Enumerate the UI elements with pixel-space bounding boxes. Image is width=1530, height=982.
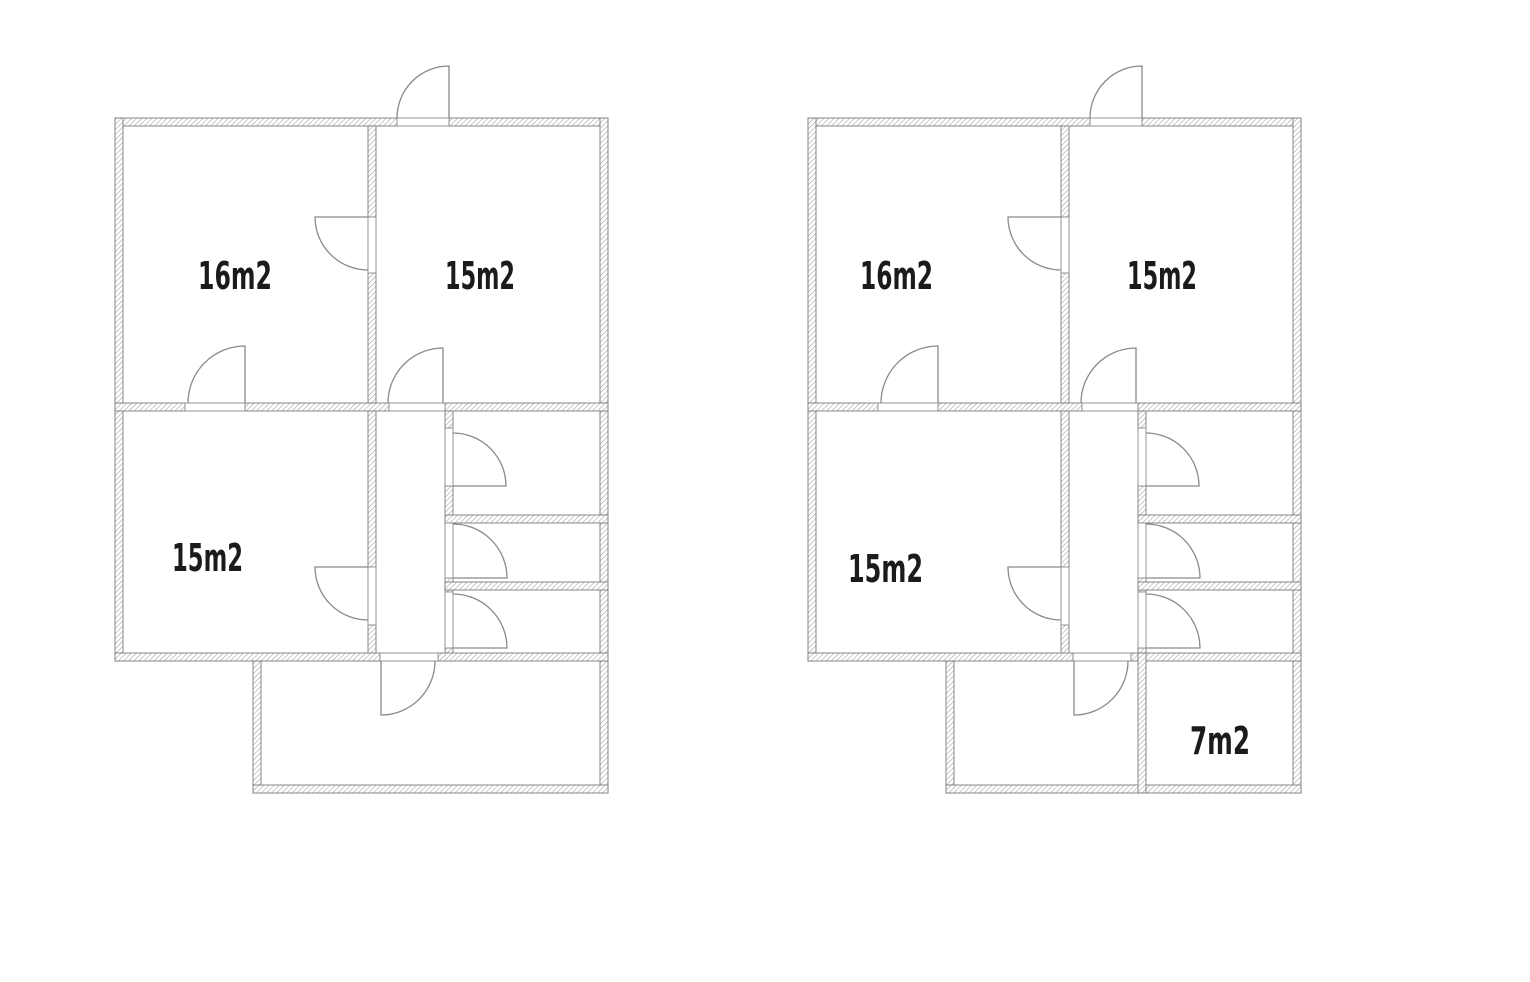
floor-plan-left: 16m215m215m2 [115,66,608,793]
door-opening [445,592,453,648]
door-opening [185,403,245,411]
door-opening [1138,523,1146,578]
wall-segment [115,118,123,661]
wall-segment [1138,411,1146,428]
wall-segment [1131,653,1301,661]
door-opening [397,118,449,126]
door-swing [1008,217,1061,270]
room-area-label: 7m2 [1190,719,1250,763]
wall-segment [1061,273,1069,403]
floor-plan-right: 16m215m215m27m2 [808,66,1301,793]
door-opening [389,403,445,411]
wall-segment [600,118,608,793]
door-swing [315,567,368,620]
wall-segment [1061,411,1069,567]
wall-segment [445,515,608,523]
door-opening [1073,653,1131,661]
door-swing [1008,567,1061,620]
door-opening [878,403,938,411]
wall-segment [1138,515,1301,523]
door-swing [1090,66,1142,118]
wall-segment [808,118,1090,126]
wall-segment [253,785,608,793]
room-area-label: 15m2 [848,547,923,591]
door-opening [368,567,376,625]
room-area-label: 16m2 [860,254,933,298]
door-opening [1090,118,1142,126]
wall-segment [1138,403,1301,411]
door-swing [1146,524,1200,578]
wall-segment [938,403,1082,411]
room-area-label: 16m2 [198,254,272,298]
door-opening [445,428,453,486]
wall-segment [445,582,608,590]
door-opening [368,217,376,273]
floor-plans-group: 16m215m215m216m215m215m27m2 [115,66,1301,793]
room-area-label: 15m2 [172,536,243,580]
door-opening [380,653,438,661]
door-swing [315,217,368,270]
wall-segment [1293,118,1301,793]
floor-plan-diagram: 16m215m215m216m215m215m27m2 [0,0,1530,982]
door-swing [1146,433,1199,486]
door-swing [1081,348,1136,403]
wall-segment [946,661,954,793]
door-opening [1061,567,1069,625]
room-area-label: 15m2 [445,254,515,298]
wall-segment [449,118,608,126]
door-opening [1061,217,1069,273]
wall-segment [1142,118,1301,126]
door-swing [453,433,506,486]
wall-segment [808,653,1073,661]
door-swing [881,346,938,403]
wall-segment [368,126,376,217]
door-opening [1082,403,1138,411]
wall-segment [115,653,380,661]
floor-plans-svg: 16m215m215m216m215m215m27m2 [0,0,1530,982]
wall-segment [1138,582,1301,590]
wall-segment [946,785,1301,793]
wall-segment [115,118,397,126]
door-opening [1138,428,1146,486]
door-swing [453,594,507,648]
door-swing [381,661,435,715]
wall-segment [368,411,376,567]
wall-segment [253,661,261,793]
wall-segment [445,403,608,411]
door-swing [1146,594,1200,648]
door-swing [188,346,245,403]
door-swing [453,524,507,578]
door-swing [388,348,443,403]
door-swing [1074,661,1128,715]
wall-segment [808,118,816,661]
door-opening [445,523,453,578]
wall-segment [368,273,376,403]
wall-segment [438,653,608,661]
room-area-label: 15m2 [1127,254,1197,298]
wall-segment [115,403,185,411]
wall-segment [1138,653,1146,793]
door-opening [1138,592,1146,648]
wall-segment [445,411,453,428]
door-swing [397,66,449,118]
wall-segment [1061,126,1069,217]
wall-segment [245,403,389,411]
wall-segment [808,403,878,411]
